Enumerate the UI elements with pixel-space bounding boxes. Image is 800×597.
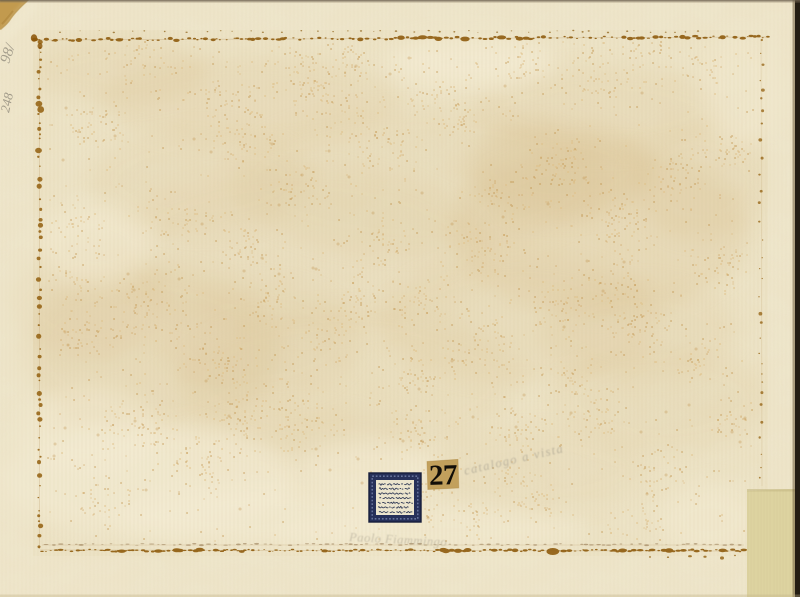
- svg-text:27: 27: [429, 459, 458, 492]
